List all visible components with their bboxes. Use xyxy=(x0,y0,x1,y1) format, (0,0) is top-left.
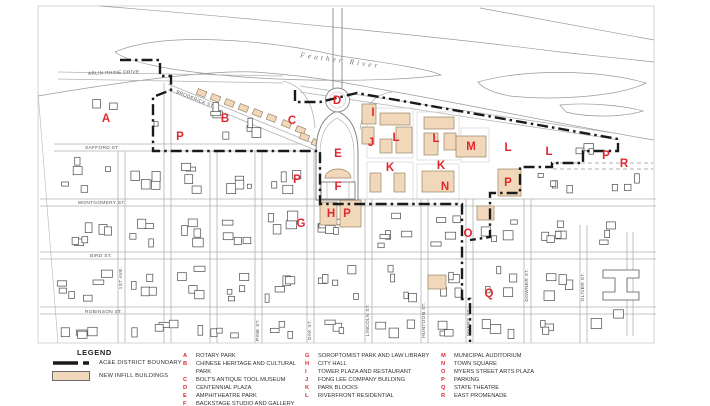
legend-key: M xyxy=(441,352,454,360)
street-label-downer-st-: DOWNER ST. xyxy=(524,268,530,301)
building xyxy=(612,184,617,190)
building xyxy=(508,329,514,338)
building xyxy=(217,328,223,333)
building xyxy=(178,273,187,281)
legend-entry-L: LRIVERFRONT RESIDENTIAL xyxy=(305,392,441,400)
building xyxy=(503,231,513,240)
infill-building xyxy=(424,117,454,129)
building xyxy=(497,266,501,274)
building xyxy=(557,221,563,227)
building xyxy=(149,239,154,247)
building xyxy=(265,294,269,302)
legend-entry-Q: QSTATE THEATRE xyxy=(441,384,534,392)
legend-label: TOWER PLAZA AND RESTAURANT xyxy=(318,368,411,376)
legend-label: STATE THEATRE xyxy=(454,384,499,392)
building xyxy=(132,328,137,337)
marker-m-9: M xyxy=(466,141,476,153)
building xyxy=(283,185,293,193)
building xyxy=(551,181,556,187)
bridge xyxy=(333,8,342,88)
infill-building xyxy=(252,109,263,118)
building xyxy=(455,288,461,297)
legend-label: MYERS STREET ARTS PLAZA xyxy=(454,368,534,376)
legend-label: MUNICIPAL AUDITORIUM xyxy=(454,352,522,360)
legend-label: PARKING xyxy=(454,376,479,384)
building xyxy=(567,185,573,193)
boundary-line-swatch xyxy=(52,359,92,367)
legend-boundary-item: AC&E DISTRICT BOUNDARY xyxy=(52,359,182,367)
street-label-safford-st-: SAFFORD ST. xyxy=(85,145,119,151)
building xyxy=(194,266,205,271)
building xyxy=(82,237,88,243)
infill-building xyxy=(370,173,381,192)
street-label-bird-st-: BIRD ST. xyxy=(90,253,112,259)
marker-q-25: Q xyxy=(485,288,494,300)
marker-b-2: B xyxy=(221,113,229,125)
building xyxy=(624,184,631,190)
building xyxy=(270,328,279,332)
legend-entry-A: AROTARY PARK xyxy=(183,352,305,360)
legend-key: G xyxy=(305,352,318,360)
infill-building xyxy=(394,173,405,192)
building xyxy=(392,213,401,219)
building xyxy=(325,320,335,324)
building xyxy=(131,171,140,181)
building xyxy=(543,327,549,334)
legend-key: B xyxy=(183,360,196,376)
building xyxy=(438,321,447,329)
building xyxy=(73,167,82,175)
infill-building xyxy=(238,104,249,113)
building xyxy=(152,172,160,182)
building xyxy=(149,287,156,295)
legend-label: AMPHITHEATRE PARK xyxy=(196,392,257,400)
building xyxy=(555,231,561,238)
legend-label: BACKSTAGE STUDIO AND GALLERY xyxy=(196,400,294,406)
legend-entry-O: OMYERS STREET ARTS PLAZA xyxy=(441,368,534,376)
building xyxy=(334,227,339,234)
street-label-oliver-st-: OLIVER ST. xyxy=(580,273,586,302)
building xyxy=(546,274,556,281)
building xyxy=(240,273,249,280)
legend-key: N xyxy=(441,360,454,368)
building xyxy=(243,237,251,243)
legend-key: E xyxy=(183,392,196,400)
building xyxy=(105,167,110,172)
building xyxy=(227,289,232,294)
building xyxy=(273,225,281,234)
building xyxy=(511,220,518,224)
building xyxy=(228,296,234,301)
building xyxy=(272,182,277,188)
building xyxy=(614,310,624,318)
building xyxy=(195,291,204,299)
building xyxy=(388,265,393,272)
building xyxy=(490,325,501,334)
building xyxy=(81,186,88,193)
building xyxy=(492,236,497,242)
river-label: Feather River xyxy=(299,50,381,70)
building xyxy=(606,222,615,229)
building xyxy=(407,320,414,328)
building xyxy=(185,175,193,184)
infill-building xyxy=(422,171,454,192)
legend-key: F xyxy=(183,400,196,406)
district-map: ARLIN RHINE DRIVEBRODERICK ST.SAFFORD ST… xyxy=(0,0,710,345)
building xyxy=(223,233,233,240)
street-label-robinson-st-: ROBINSON ST. xyxy=(85,309,122,315)
building xyxy=(332,280,337,285)
building xyxy=(402,231,412,237)
building xyxy=(147,274,153,281)
legend-key: C xyxy=(183,376,196,384)
building xyxy=(279,321,285,327)
building xyxy=(635,174,640,183)
legend-entry-E: EAMPHITHEATRE PARK xyxy=(183,392,305,400)
building xyxy=(62,182,69,186)
building xyxy=(605,230,610,237)
building xyxy=(169,320,178,328)
legend-entry-N: NTOWN SQUARE xyxy=(441,360,534,368)
legend-entry-J: JFONG LEE COMPANY BUILDING xyxy=(305,376,441,384)
marker-g-20: G xyxy=(297,218,306,230)
building xyxy=(339,328,344,334)
legend-entry-B: BCHINESE HERITAGE AND CULTURAL PARK xyxy=(183,360,305,376)
building xyxy=(104,227,111,235)
building xyxy=(247,184,251,188)
building xyxy=(354,293,359,299)
legend-entry-M: MMUNICIPAL AUDITORIUM xyxy=(441,352,534,360)
building xyxy=(182,226,188,236)
building xyxy=(275,286,284,292)
marker-l-11: L xyxy=(545,146,552,158)
legend-entry-G: GSOROPTOMIST PARK AND LAW LIBRARY xyxy=(305,352,441,360)
legend-title: LEGEND xyxy=(77,348,112,357)
building xyxy=(268,213,273,222)
building xyxy=(404,292,408,299)
legend-infill-item: NEW INFILL BUILDINGS xyxy=(52,371,182,381)
marker-p-1: P xyxy=(176,131,184,143)
building xyxy=(110,103,118,109)
building xyxy=(155,324,163,331)
infill-building xyxy=(380,139,392,153)
marker-l-7: L xyxy=(392,132,399,144)
marker-h-21: H xyxy=(327,208,335,220)
legend-swatches: AC&E DISTRICT BOUNDARY NEW INFILL BUILDI… xyxy=(52,359,182,381)
street-label-lincoln-st-: LINCOLN ST. xyxy=(365,304,371,336)
legend-key: A xyxy=(183,352,196,360)
building xyxy=(482,320,490,329)
marker-p-19: P xyxy=(293,174,301,186)
legend-label: RIVERFRONT RESIDENTIAL xyxy=(318,392,394,400)
building xyxy=(223,132,229,139)
legend-label: PARK BLOCKS xyxy=(318,384,358,392)
building xyxy=(101,270,112,277)
building xyxy=(281,172,286,182)
marker-k-15: K xyxy=(386,162,395,174)
building xyxy=(93,100,101,108)
legend-column-1: AROTARY PARKBCHINESE HERITAGE AND CULTUR… xyxy=(183,352,305,406)
building xyxy=(288,331,293,338)
street-label-montgomery-st-: MONTGOMERY ST. xyxy=(78,200,126,206)
legend-key: H xyxy=(305,360,318,368)
marker-r-13: R xyxy=(620,158,629,170)
marker-c-3: C xyxy=(288,115,296,127)
building xyxy=(130,234,136,240)
legend-label: ROTARY PARK xyxy=(196,352,236,360)
street-label-huntoon-st-: HUNTOON ST. xyxy=(421,302,427,338)
building xyxy=(57,281,66,286)
building xyxy=(239,286,244,292)
building xyxy=(145,224,154,229)
infill-building xyxy=(444,133,456,150)
building xyxy=(154,122,158,126)
building xyxy=(589,149,594,155)
legend-label: CENTENNIAL PLAZA xyxy=(196,384,251,392)
building xyxy=(380,235,390,239)
building xyxy=(222,220,233,225)
marker-k-16: K xyxy=(437,160,446,172)
building xyxy=(141,287,149,296)
building xyxy=(445,232,455,239)
legend-label: BOLT'S ANTIQUE TOOL MUSEUM xyxy=(196,376,285,384)
marker-n-17: N xyxy=(441,181,449,193)
special-buildings xyxy=(603,270,639,300)
building xyxy=(234,237,241,244)
building xyxy=(431,242,441,246)
building xyxy=(211,112,221,116)
marker-f-18: F xyxy=(334,181,341,193)
legend-entry-D: DCENTENNIAL PLAZA xyxy=(183,384,305,392)
legend-key: R xyxy=(441,392,454,400)
building xyxy=(211,329,217,337)
legend-entry-C: CBOLT'S ANTIQUE TOOL MUSEUM xyxy=(183,376,305,384)
marker-a-0: A xyxy=(102,113,110,125)
street-label-arlin-rhine-drive: ARLIN RHINE DRIVE xyxy=(88,69,140,77)
legend-columns: AROTARY PARKBCHINESE HERITAGE AND CULTUR… xyxy=(183,352,534,406)
building xyxy=(544,291,555,301)
marker-j-6: J xyxy=(368,137,374,149)
marker-p-12: P xyxy=(602,150,610,162)
legend-key: D xyxy=(183,384,196,392)
legend-entry-K: KPARK BLOCKS xyxy=(305,384,441,392)
building xyxy=(192,186,201,193)
legend-key: L xyxy=(305,392,318,400)
infill-building xyxy=(380,113,410,125)
building xyxy=(188,219,197,227)
building xyxy=(69,292,75,299)
boundary-line-swatch-graphic xyxy=(52,359,92,367)
building xyxy=(88,327,97,336)
building xyxy=(231,333,239,338)
building xyxy=(437,218,446,223)
legend-label: SOROPTOMIST PARK AND LAW LIBRARY xyxy=(318,352,429,360)
legend-entry-F: FBACKSTAGE STUDIO AND GALLERY xyxy=(183,400,305,406)
building xyxy=(449,272,453,280)
street-label-myers-st-: MYERS ST. xyxy=(466,308,472,336)
building xyxy=(376,322,386,329)
building xyxy=(193,238,204,247)
legend-label: CHINESE HERITAGE AND CULTURAL PARK xyxy=(196,360,305,376)
legend-entry-P: PPARKING xyxy=(441,376,534,384)
building xyxy=(61,328,69,337)
building xyxy=(93,280,104,284)
legend-entry-H: HCITY HALL xyxy=(305,360,441,368)
legend-key: J xyxy=(305,376,318,384)
legend-label: FONG LEE COMPANY BUILDING xyxy=(318,376,405,384)
legend-boundary-label: AC&E DISTRICT BOUNDARY xyxy=(99,360,182,366)
marker-l-10: L xyxy=(504,142,511,154)
building xyxy=(591,319,602,329)
building xyxy=(378,243,384,248)
district-plan-page: ARLIN RHINE DRIVEBRODERICK ST.SAFFORD ST… xyxy=(0,0,710,406)
building xyxy=(72,237,78,244)
building xyxy=(252,128,261,138)
building xyxy=(131,282,136,290)
legend-key: P xyxy=(441,376,454,384)
infill-building xyxy=(428,275,446,289)
building xyxy=(235,180,244,189)
street-label-1st-ave-: 1ST AVE. xyxy=(118,267,124,290)
building xyxy=(85,223,92,233)
marker-l-8: L xyxy=(432,133,439,145)
street-label-pine-st-: PINE ST. xyxy=(255,319,261,341)
building xyxy=(504,288,513,297)
building xyxy=(559,275,567,285)
building xyxy=(538,173,543,177)
building xyxy=(78,331,87,338)
legend-key: I xyxy=(305,368,318,376)
infill-building xyxy=(299,133,310,142)
building xyxy=(181,163,190,170)
building xyxy=(285,277,294,284)
marker-p-22: P xyxy=(343,208,351,220)
marker-o-24: O xyxy=(464,228,473,240)
building xyxy=(444,330,453,337)
legend-column-2: GSOROPTOMIST PARK AND LAW LIBRARYHCITY H… xyxy=(305,352,441,406)
building xyxy=(389,328,398,338)
building xyxy=(409,294,417,302)
building xyxy=(286,221,297,229)
building xyxy=(75,157,80,165)
legend-key: K xyxy=(305,384,318,392)
infill-building xyxy=(224,99,235,108)
infill-building xyxy=(210,94,221,103)
marker-p-23: P xyxy=(504,177,512,189)
building xyxy=(138,219,146,228)
building xyxy=(547,236,555,243)
building xyxy=(391,274,395,282)
building xyxy=(83,295,92,301)
legend-entry-R: REAST PROMENADE xyxy=(441,392,534,400)
building xyxy=(198,325,203,335)
building xyxy=(227,184,236,194)
legend-infill-label: NEW INFILL BUILDINGS xyxy=(99,373,168,379)
building xyxy=(348,266,356,274)
legend-column-3: MMUNICIPAL AUDITORIUMNTOWN SQUAREOMYERS … xyxy=(441,352,534,406)
building xyxy=(194,229,201,237)
marker-d-4: D xyxy=(333,95,341,107)
street-label-oak-st-: OAK ST. xyxy=(307,320,313,341)
building xyxy=(235,176,243,180)
legend-key: Q xyxy=(441,384,454,392)
building xyxy=(510,274,517,282)
infill-swatch xyxy=(52,371,92,381)
building xyxy=(453,216,461,223)
marker-i-5: I xyxy=(371,107,374,119)
legend-key: O xyxy=(441,368,454,376)
building xyxy=(322,275,328,284)
infill-building xyxy=(477,206,494,220)
legend: LEGEND AC&E DISTRICT BOUNDARY NEW INFILL… xyxy=(0,345,710,406)
legend-entry-I: ITOWER PLAZA AND RESTAURANT xyxy=(305,368,441,376)
legend-label: EAST PROMENADE xyxy=(454,392,507,400)
infill-building xyxy=(266,114,277,123)
building xyxy=(141,180,150,190)
building xyxy=(600,240,608,245)
legend-label: TOWN SQUARE xyxy=(454,360,497,368)
marker-e-14: E xyxy=(334,148,342,160)
building xyxy=(541,321,546,328)
building xyxy=(248,118,253,128)
infill-building xyxy=(295,126,306,135)
street-label-broderick-st-: BRODERICK ST. xyxy=(175,89,215,110)
legend-label: CITY HALL xyxy=(318,360,347,368)
building xyxy=(59,288,66,293)
